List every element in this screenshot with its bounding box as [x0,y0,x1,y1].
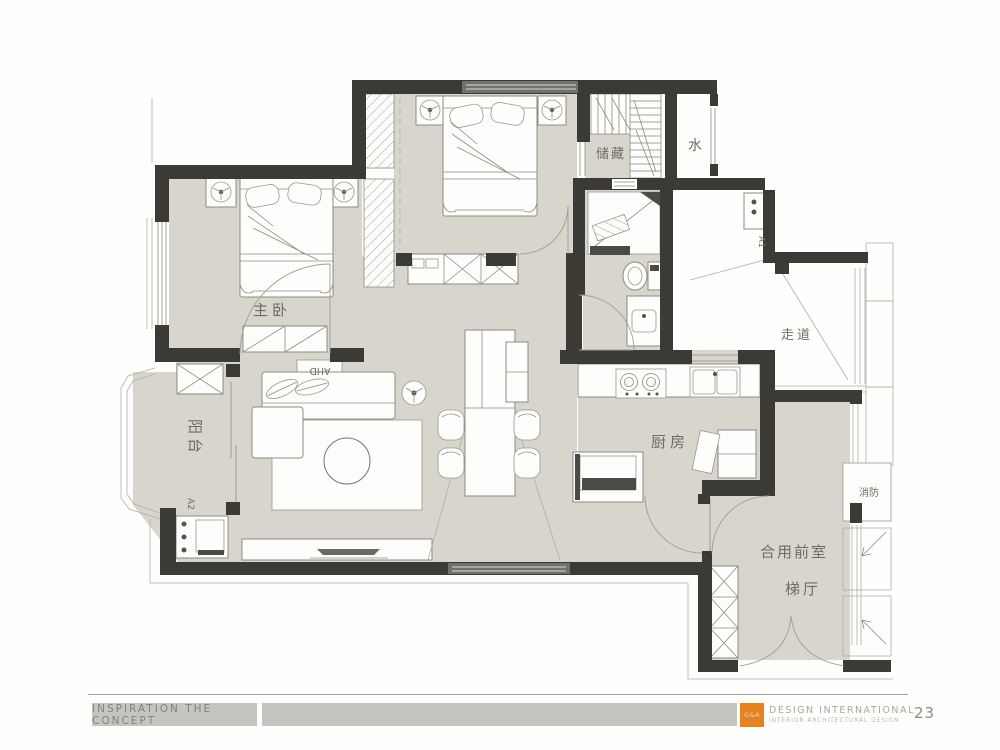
ac-unit-1-label: A1 [756,236,766,248]
page-number: 23 [914,704,935,722]
ahd-unit-label: AHD [310,365,331,376]
shower-screen [590,246,630,255]
balcony-fixtures [176,516,228,558]
corridor-ac-unit [744,193,764,229]
master-wardrobe [364,179,394,287]
lamp-icon [334,182,354,202]
footer-divider [88,694,908,695]
dining-chair [438,410,464,440]
footer-left-tab: INSPIRATION THE CONCEPT [92,703,257,726]
floor-plan: 主卧 阳台 厨房 储藏 水 走道 合用前室 梯厅 消防 A1 A2 AHD [0,0,1000,750]
water-room-label: 水 [688,138,702,154]
brand-tagline: INTERIOR ARCHITECTURAL DESIGN [769,718,915,724]
ac-unit-2-label: A2 [185,498,195,510]
stair-hall-label: 梯厅 [785,580,821,598]
chaise [252,407,303,458]
storage-label: 储藏 [596,147,626,162]
footer-spacer-bar [262,703,737,726]
corridor-label: 走道 [781,328,813,343]
closet [364,94,394,168]
dining-chair [438,448,464,478]
brand-abbr-label: G&A [744,711,760,719]
kitchen-label: 厨房 [651,433,689,451]
tv [317,549,380,555]
presentation-slide: 主卧 阳台 厨房 储藏 水 走道 合用前室 梯厅 消防 A1 A2 AHD IN… [0,0,1000,750]
brand-name: DESIGN INTERNATIONAL [769,705,915,716]
lamp-icon [211,182,231,202]
dining-chair [514,410,540,440]
brand-block: DESIGN INTERNATIONAL INTERIOR ARCHITECTU… [769,705,915,724]
dining-chair [514,448,540,478]
shared-front-room-label: 合用前室 [760,543,828,561]
brand-logo: G&A [740,703,764,727]
stove [616,369,666,398]
fire-service-label: 消防 [859,486,879,499]
master-bedroom-label: 主卧 [253,301,291,319]
footer-left-tab-label: INSPIRATION THE CONCEPT [92,703,257,727]
balcony-label: 阳台 [186,419,204,457]
